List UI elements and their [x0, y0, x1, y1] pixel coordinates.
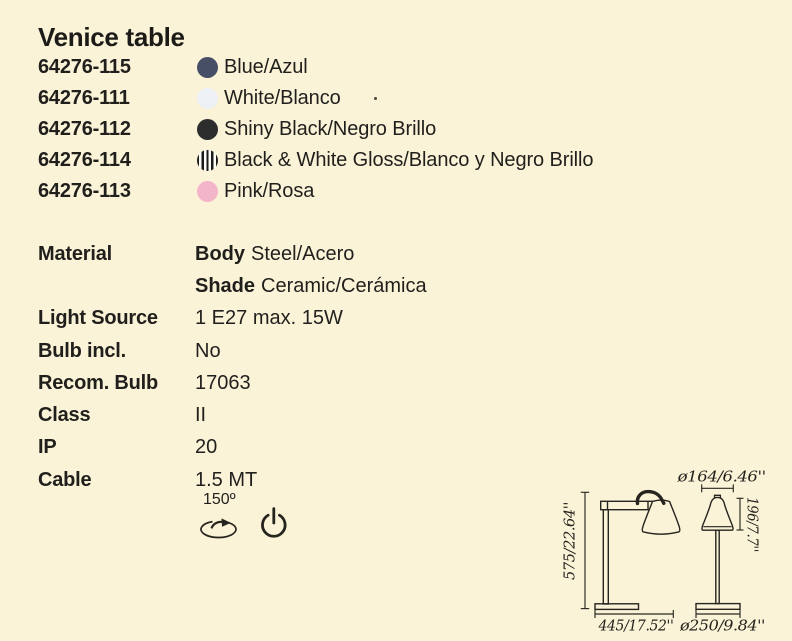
spec-row-recom-bulb: Recom. Bulb 17063: [38, 367, 598, 399]
product-row: 64276-112 Shiny Black/Negro Brillo: [38, 114, 658, 145]
spec-value-text: 1 E27 max. 15W: [195, 307, 343, 329]
spec-value: 1 E27 max. 15W: [195, 307, 343, 330]
color-swatch-pink: [197, 181, 218, 202]
color-name: Pink/Rosa: [224, 180, 314, 203]
spec-label: IP: [38, 436, 195, 459]
spec-label: Material: [38, 243, 195, 266]
dimension-shade-height: 196/7.7'': [744, 497, 760, 552]
spec-label: Class: [38, 404, 195, 427]
spec-label: Light Source: [38, 307, 195, 330]
spec-value: II: [195, 404, 206, 427]
spec-row-class: Class II: [38, 399, 598, 431]
spec-value: No: [195, 340, 221, 363]
color-swatch-blue: [197, 57, 218, 78]
color-swatch-black-white-stripes: [197, 150, 218, 171]
product-code: 64276-112: [38, 118, 197, 141]
page-title: Venice table: [38, 22, 185, 53]
spec-value: BodySteel/Acero: [195, 243, 354, 266]
product-row: 64276-115 Blue/Azul: [38, 52, 658, 83]
spec-value: 20: [195, 436, 217, 459]
spec-value-text: 20: [195, 436, 217, 458]
spec-value-bold: Shade: [195, 275, 255, 297]
spec-value: 1.5 MT: [195, 469, 257, 492]
dimension-depth: 445/17.52'': [598, 619, 674, 635]
spec-row-light-source: Light Source 1 E27 max. 15W: [38, 303, 598, 335]
stray-print-mark: [374, 97, 377, 100]
lamp-front-view: [696, 495, 740, 609]
rotation-angle-label: 150º: [203, 491, 236, 509]
lamp-base-side: [595, 604, 639, 610]
lamp-arm: [601, 501, 655, 509]
spec-row-ip: IP 20: [38, 432, 598, 464]
spec-value: ShadeCeramic/Cerámica: [195, 275, 427, 298]
color-swatch-black: [197, 119, 218, 140]
color-swatch-white: [197, 88, 218, 109]
dimension-base-diameter: ø250/9.84'': [679, 619, 765, 635]
dimension-shade-diameter: ø164/6.46'': [677, 470, 766, 486]
spec-value-text: 1.5 MT: [195, 469, 257, 491]
spec-label: Bulb incl.: [38, 340, 195, 363]
power-symbol-icon: [261, 507, 287, 538]
color-name: Shiny Black/Negro Brillo: [224, 118, 436, 141]
product-row: 64276-113 Pink/Rosa: [38, 176, 658, 207]
spec-value-bold: Body: [195, 243, 245, 265]
spec-value-text: Ceramic/Cerámica: [261, 275, 427, 297]
spec-value: 17063: [195, 372, 251, 395]
lamp-shade-front: [702, 497, 733, 530]
spec-value-text: Steel/Acero: [251, 243, 354, 265]
spec-row-material: Material BodySteel/Acero: [38, 238, 598, 270]
spec-label: Cable: [38, 469, 195, 492]
spec-table: Material BodySteel/Acero ShadeCeramic/Ce…: [38, 238, 598, 496]
product-row: 64276-114 Black & White Gloss/Blanco y N…: [38, 145, 658, 176]
rotation-arrow-icon: [200, 518, 241, 540]
spec-value-text: No: [195, 340, 221, 362]
product-code: 64276-114: [38, 149, 197, 172]
lamp-pole-front: [716, 530, 719, 603]
spec-row-material-shade: ShadeCeramic/Cerámica: [38, 270, 598, 302]
catalog-page: Venice table 64276-115 Blue/Azul 64276-1…: [0, 0, 792, 641]
spec-row-cable: Cable 1.5 MT: [38, 464, 598, 496]
color-name: White/Blanco: [224, 87, 341, 110]
product-code: 64276-113: [38, 180, 197, 203]
product-row: 64276-111 White/Blanco: [38, 83, 658, 114]
spec-value-text: 17063: [195, 372, 251, 394]
lamp-base-front: [696, 604, 740, 610]
product-code: 64276-111: [38, 87, 197, 110]
lamp-side-view: [595, 492, 680, 610]
dimension-height: 575/22.64'': [563, 502, 579, 580]
spec-row-bulb-incl: Bulb incl. No: [38, 335, 598, 367]
technical-drawing: 575/22.64'' 445/17.52'' ø164/6.46'' 196/…: [560, 448, 792, 641]
product-color-list: 64276-115 Blue/Azul 64276-111 White/Blan…: [38, 52, 658, 207]
color-name: Black & White Gloss/Blanco y Negro Brill…: [224, 149, 593, 172]
spec-label: Recom. Bulb: [38, 372, 195, 395]
product-code: 64276-115: [38, 56, 197, 79]
spec-value-text: II: [195, 404, 206, 426]
color-name: Blue/Azul: [224, 56, 308, 79]
lamp-pole: [603, 510, 608, 604]
